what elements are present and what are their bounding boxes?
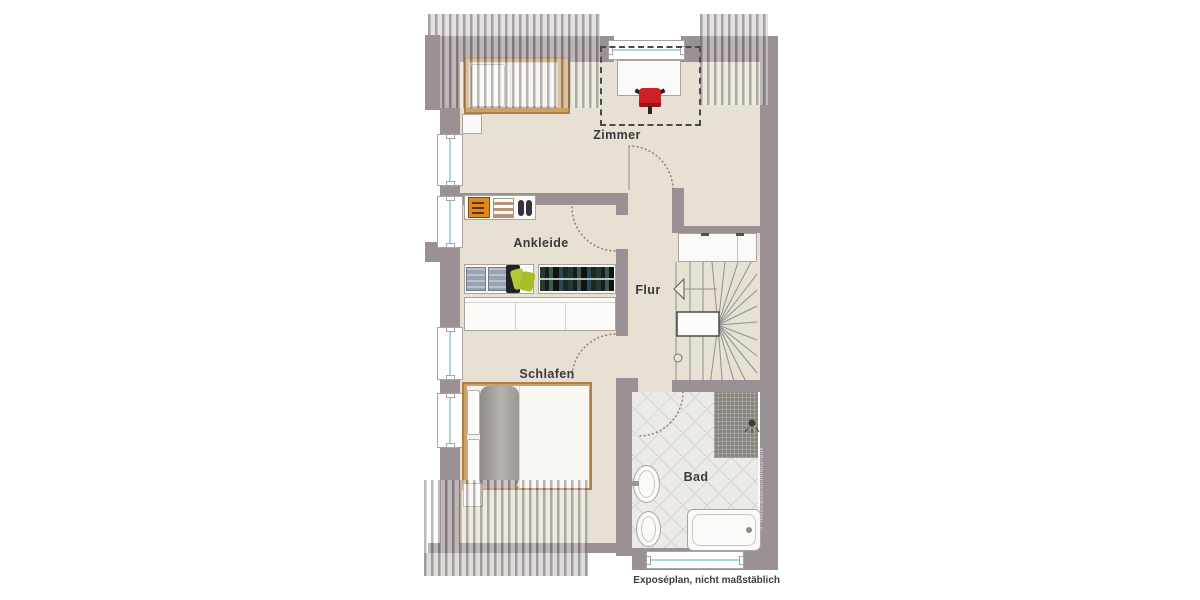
window-cap (446, 393, 455, 398)
window-cap (446, 134, 455, 139)
duvet (519, 386, 589, 488)
sink-basin (638, 470, 655, 498)
window-glass (449, 201, 451, 243)
room-label-ankleide: Ankleide (513, 236, 568, 250)
wall-closet-top (672, 226, 760, 233)
window-bad (646, 551, 744, 569)
folded-clothes-1 (466, 267, 486, 291)
wall-left (440, 36, 460, 545)
clothes-rail (538, 264, 616, 294)
tub-faucet (746, 527, 752, 533)
closet-handle (736, 233, 744, 236)
window-cap (446, 181, 455, 186)
shoe-left (518, 200, 524, 216)
wall-flur-corner (616, 193, 628, 215)
watermark: ⌂ IllustrationsImmoGrafik (758, 420, 771, 532)
room-label-flur: Flur (635, 283, 660, 297)
window-left-4 (437, 393, 463, 448)
roof-hatching-top-left (428, 14, 600, 108)
window-glass (449, 332, 451, 375)
window-glass (651, 559, 739, 561)
window-glass (449, 139, 451, 181)
window-cap (646, 556, 651, 565)
closet-divider (737, 234, 738, 261)
window-cap (446, 196, 455, 201)
shoe-right (526, 200, 532, 216)
sloped-ceiling-zone (600, 46, 701, 126)
wall-bad-west (616, 378, 632, 556)
wall-bad-north-left (616, 378, 638, 392)
double-bed (462, 382, 592, 490)
window-cap (446, 443, 455, 448)
bathtub (687, 509, 761, 551)
nightstand-zimmer (462, 114, 482, 134)
window-cap (446, 375, 455, 380)
storage-box (468, 197, 490, 218)
window-glass (449, 398, 451, 443)
closet-handle (701, 233, 709, 236)
wall-stub-topleft (425, 35, 440, 110)
window-left-3 (437, 327, 463, 380)
plan-caption: Exposéplan, nicht maßstäblich (578, 575, 780, 586)
toilet-bowl (641, 516, 656, 542)
window-left-2 (437, 196, 463, 248)
room-label-bad: Bad (684, 470, 709, 484)
wardrobe-line (465, 302, 615, 303)
closet (678, 233, 757, 262)
room-label-schlafen: Schlafen (519, 367, 574, 381)
room-label-zimmer: Zimmer (593, 128, 641, 142)
floorplan: Zimmer Ankleide Flur Schlafen Bad ⌂ Illu… (0, 0, 1200, 600)
sink-faucet (630, 481, 639, 486)
roof-hatching-bottom (424, 480, 588, 576)
towel-stack (493, 198, 514, 218)
window-left-1 (437, 134, 463, 186)
folded-duvet (480, 386, 519, 488)
wall-stair-bad (672, 380, 778, 392)
wardrobe (464, 297, 616, 331)
box-label-lines (472, 202, 484, 214)
window-cap (446, 327, 455, 332)
folded-clothes-2 (488, 267, 507, 291)
wall-flur-west (616, 249, 628, 336)
rail-rod (539, 278, 615, 280)
window-cap (446, 243, 455, 248)
floorplan-page: { "caption": "Exposéplan, nicht maßstäbl… (0, 0, 1200, 600)
wardrobe-divider (515, 302, 516, 330)
wardrobe-divider (565, 302, 566, 330)
pillow-2 (467, 439, 480, 484)
shower (714, 392, 758, 458)
toilet (636, 511, 661, 547)
pillow-1 (467, 390, 480, 435)
roof-hatching-top-right (700, 14, 768, 105)
window-cap (739, 556, 744, 565)
